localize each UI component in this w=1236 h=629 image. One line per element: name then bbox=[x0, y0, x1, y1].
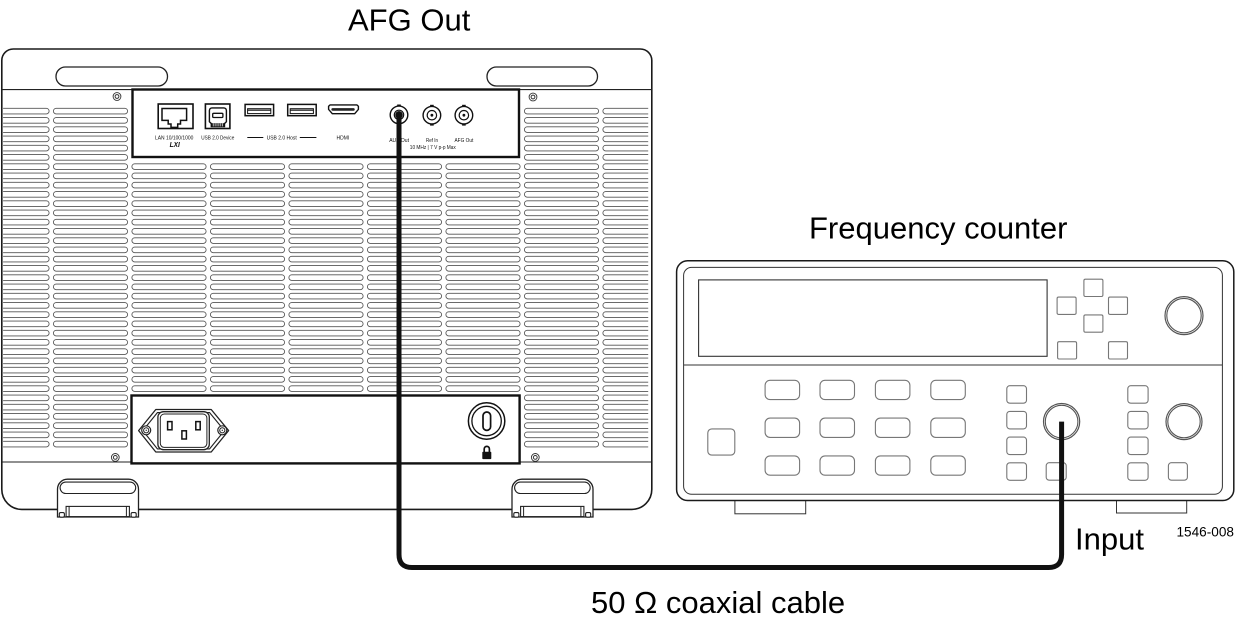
svg-text:50 Ω coaxial cable: 50 Ω coaxial cable bbox=[591, 585, 845, 620]
svg-text:10 MHz | 7 V p-p Max: 10 MHz | 7 V p-p Max bbox=[410, 145, 456, 151]
svg-text:LAN 10/100/1000: LAN 10/100/1000 bbox=[155, 135, 193, 141]
svg-text:1546-008: 1546-008 bbox=[1177, 525, 1234, 540]
svg-text:USB 2.0 Host: USB 2.0 Host bbox=[267, 136, 298, 142]
svg-text:Input: Input bbox=[1075, 522, 1144, 557]
svg-text:HDMI: HDMI bbox=[337, 136, 350, 142]
svg-text:AFG Out: AFG Out bbox=[455, 138, 474, 144]
svg-text:AFG Out: AFG Out bbox=[348, 3, 471, 38]
svg-text:LXI: LXI bbox=[170, 142, 181, 149]
svg-text:USB 2.0 Device: USB 2.0 Device bbox=[201, 135, 234, 141]
svg-text:Ref In: Ref In bbox=[426, 138, 438, 144]
svg-text:Frequency counter: Frequency counter bbox=[809, 211, 1067, 246]
